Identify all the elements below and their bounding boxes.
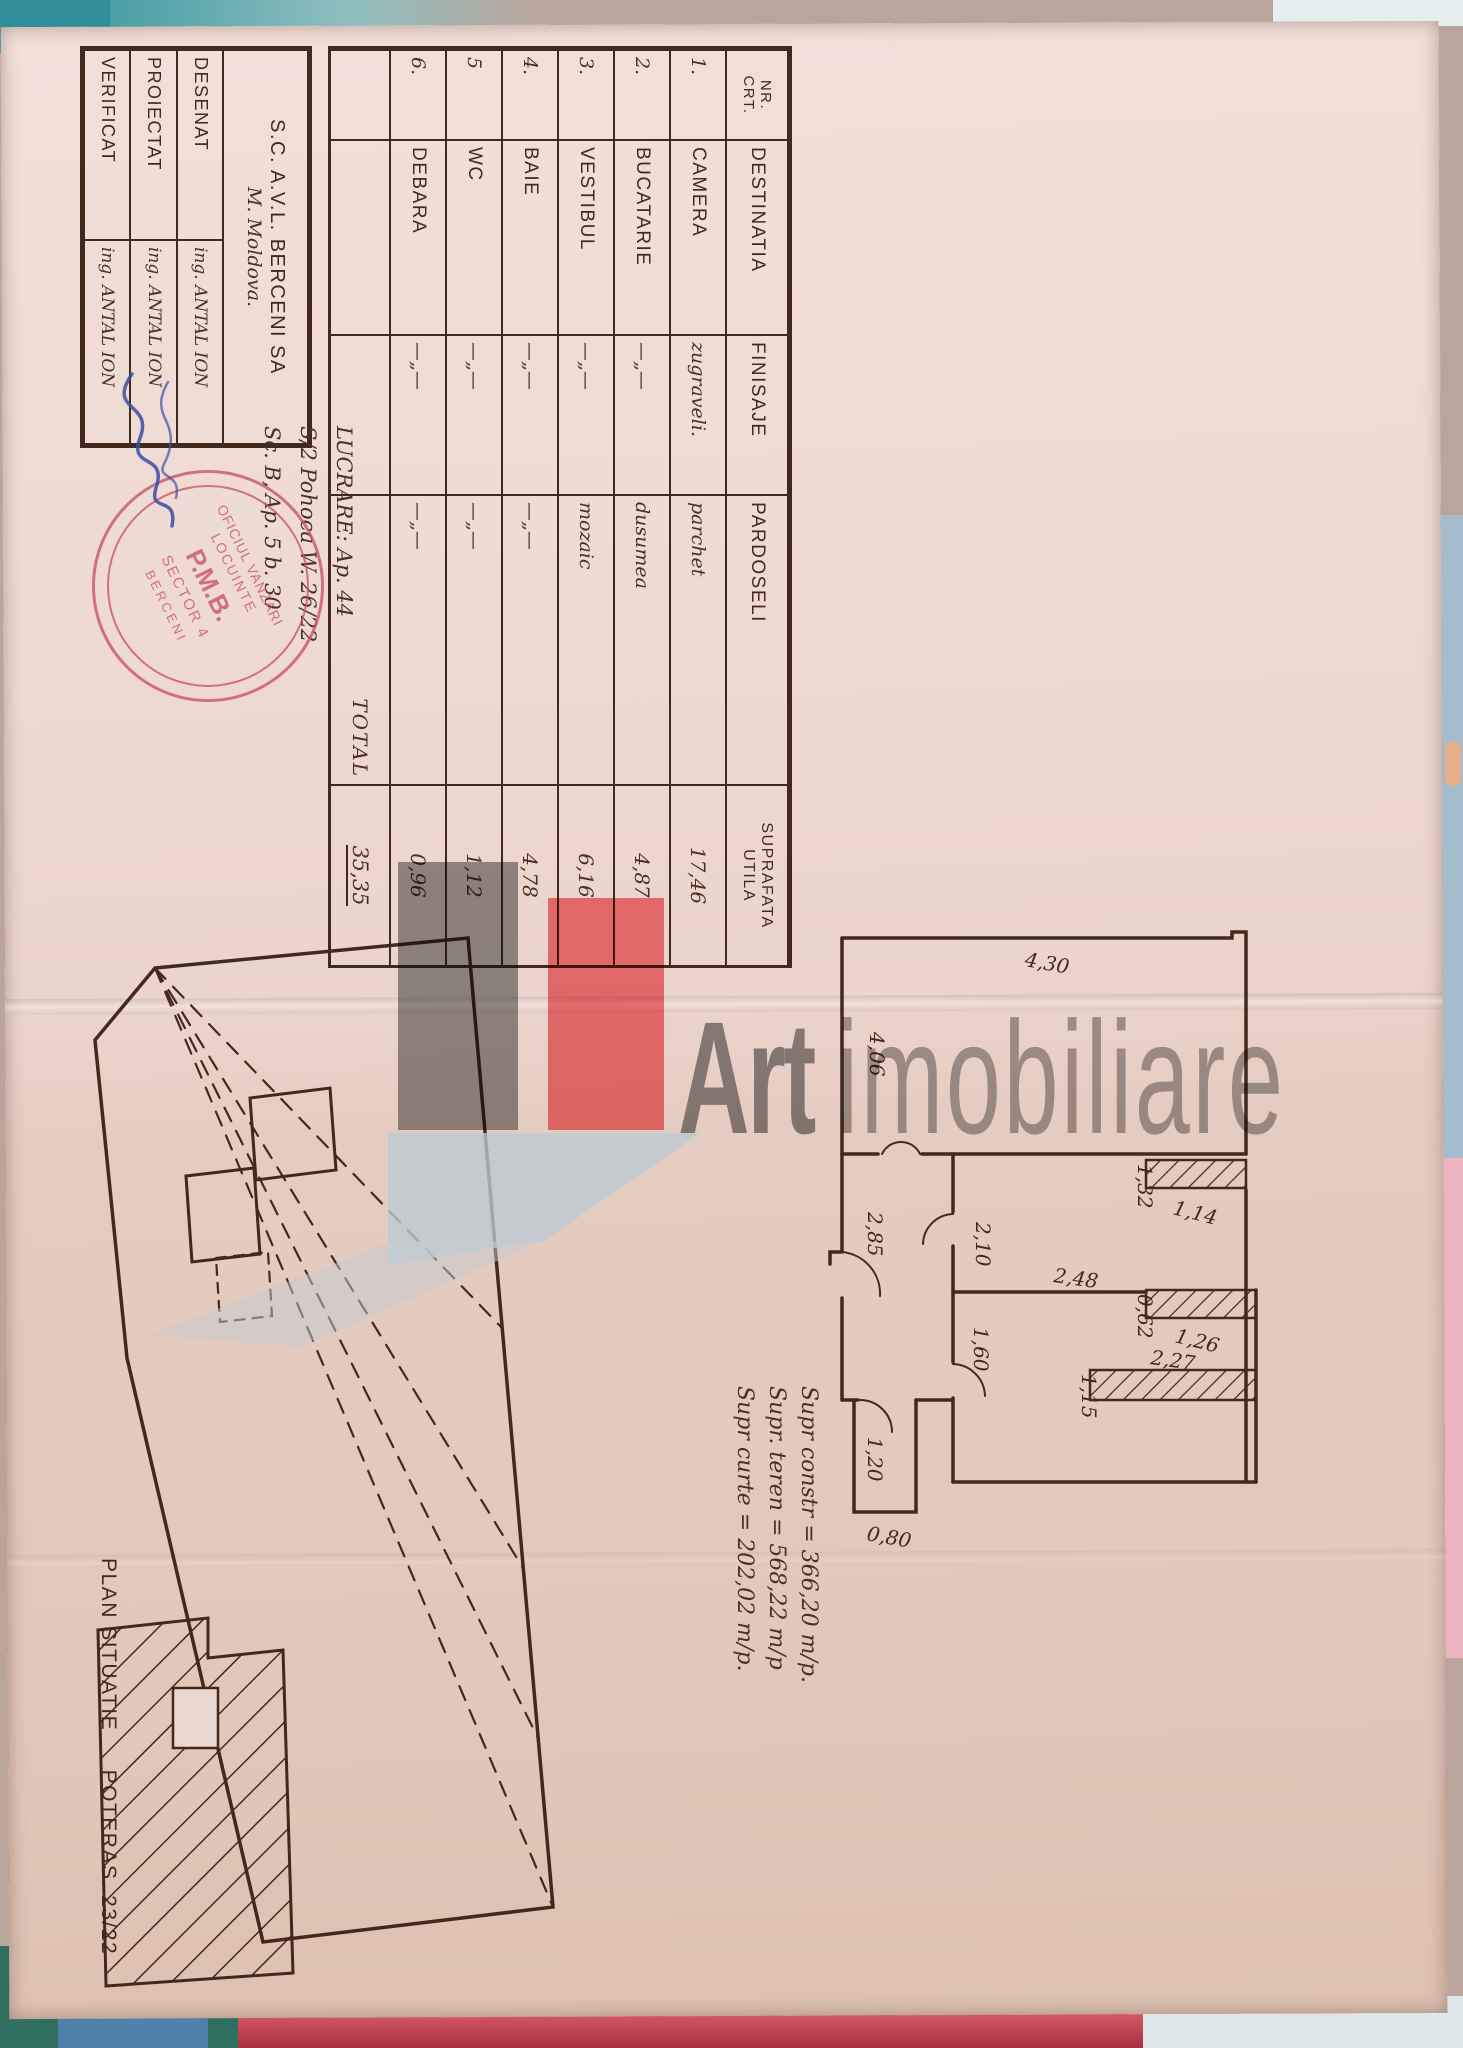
- total-value: 35,35: [346, 845, 372, 905]
- site-plan-caption: PLAN SITUATIE POTERAS. 23/22: [90, 1558, 120, 1902]
- table-row: 6. DEBARA —„— —„— 0,96: [390, 50, 446, 966]
- cell-floor: —„—: [446, 495, 502, 785]
- room-finish-table: NR. CRT. DESTINATIA FINISAJE PARDOSELI S…: [328, 46, 792, 968]
- company-name: S.C. A.V.L. BERCENI SA: [265, 57, 288, 437]
- cell-nr: 3.: [558, 50, 614, 140]
- cell-nr: 4.: [502, 50, 558, 140]
- cell-room-name: WC: [446, 140, 502, 335]
- cell-nr: 5: [446, 50, 502, 140]
- dim-label: 1,15: [1077, 1374, 1101, 1419]
- area-line-constr: Supr constr = 366,20 m/p.: [792, 1386, 824, 1866]
- cell-room-name: CAMERA: [670, 140, 726, 335]
- cell-nr: 6.: [390, 50, 446, 140]
- dim-label: 0,62: [1133, 1294, 1157, 1339]
- cell-floor: dusumea: [614, 495, 670, 785]
- cell-finish: —„—: [558, 335, 614, 495]
- dim-label: 2,10: [971, 1221, 995, 1267]
- hatched-wall-2: [1146, 1290, 1256, 1318]
- watermark-wedge: [140, 1125, 710, 1355]
- table-row: 1. CAMERA zugraveli. parchet 17,46: [670, 50, 726, 966]
- cell-finish: —„—: [390, 335, 446, 495]
- cell-floor: —„—: [390, 495, 446, 785]
- table-row: 4. BAIE —„— —„— 4,78: [502, 50, 558, 966]
- watermark-brand-imobiliare: imobiliare: [836, 988, 1285, 1167]
- cell-room-name: VESTIBUL: [558, 140, 614, 335]
- cell-finish: —„—: [502, 335, 558, 495]
- cell-room-name: BUCATARIE: [614, 140, 670, 335]
- cell-finish: —„—: [614, 335, 670, 495]
- photo-edge-bottom-red: [235, 2014, 1160, 2048]
- cell-area: 17,46: [670, 785, 726, 966]
- door-arc-upper: [923, 1214, 953, 1244]
- area-line-curte: Supr curte = 202,02 m/p.: [728, 1386, 760, 1866]
- dim-label: 0,80: [865, 1521, 913, 1552]
- caption-plan-situatie: PLAN SITUATIE: [97, 1558, 120, 1731]
- table-row: 3. VESTIBUL —„— mozaic 6,16: [558, 50, 614, 966]
- cell-floor: —„—: [502, 495, 558, 785]
- table-header-row: NR. CRT. DESTINATIA FINISAJE PARDOSELI S…: [726, 50, 788, 966]
- wall-bottom: [842, 1400, 1256, 1482]
- table-total-row: TOTAL 35,35: [330, 50, 390, 966]
- watermark-brand-art: Art: [678, 988, 814, 1167]
- title-row-label-proiectat: PROIECTAT: [130, 50, 176, 240]
- building-notch: [173, 1688, 218, 1748]
- cell-nr: 1.: [670, 50, 726, 140]
- cell-nr: 2.: [614, 50, 670, 140]
- dim-label: 1,32: [1133, 1164, 1157, 1209]
- cell-room-name: DEBARA: [390, 140, 446, 335]
- dim-label: 2,85: [863, 1211, 887, 1257]
- title-row-label-desenat: DESENAT: [177, 50, 223, 240]
- hatched-wall-3: [1090, 1370, 1256, 1400]
- door-arc-entry-left: [842, 1252, 880, 1296]
- header-pardoseli: PARDOSELI: [726, 495, 788, 785]
- dim-label: 1,14: [1171, 1196, 1220, 1230]
- table-row: 2. BUCATARIE —„— dusumea 4,87: [614, 50, 670, 966]
- header-destinatia: DESTINATIA: [726, 140, 788, 335]
- dim-label: 1,60: [969, 1327, 993, 1372]
- ink-signature: [102, 368, 242, 538]
- header-suprafata-line2: UTILA: [739, 792, 757, 959]
- caption-street: POTERAS. 23/22: [97, 1770, 120, 1956]
- wall-left-hall: [830, 1154, 842, 1264]
- cell-floor: parchet: [670, 495, 726, 785]
- watermark-red-bar: [548, 898, 664, 1130]
- dim-label: 1,20: [863, 1437, 887, 1482]
- photo-edge-right-orange: [1445, 742, 1461, 786]
- building-footprint-hatched: [98, 1618, 293, 1986]
- cell-room-name: BAIE: [502, 140, 558, 335]
- area-line-teren: Supr. teren = 568,22 m/p: [760, 1386, 792, 1866]
- total-label: TOTAL: [330, 495, 390, 785]
- door-arc-porch: [860, 1400, 892, 1432]
- table-row: 5 WC —„— —„— 1,12: [446, 50, 502, 966]
- dim-label: 2,48: [1051, 1263, 1099, 1293]
- cell-floor: mozaic: [558, 495, 614, 785]
- area-summary: Supr constr = 366,20 m/p. Supr. teren = …: [720, 1386, 824, 1866]
- photo-of-document: S.C. A.V.L. BERCENI SA M. Moldova. DESEN…: [0, 0, 1463, 2048]
- wall-right-outer: [1246, 1190, 1256, 1482]
- company-subline: M. Moldova.: [243, 57, 265, 437]
- dim-label: 4,30: [1022, 947, 1071, 979]
- watermark-gray-bar: [398, 862, 518, 1130]
- watermark-brand: Artimobiliare: [678, 998, 1285, 1158]
- cell-finish: zugraveli.: [670, 335, 726, 495]
- header-nr-crt-line1: NR.: [757, 57, 774, 133]
- title-row-label-verificat: VERIFICAT: [84, 50, 130, 240]
- header-suprafata-line1: SUPRAFATA: [757, 792, 775, 959]
- cell-finish: —„—: [446, 335, 502, 495]
- header-nr-crt-line2: CRT.: [740, 57, 757, 133]
- header-finisaje: FINISAJE: [726, 335, 788, 495]
